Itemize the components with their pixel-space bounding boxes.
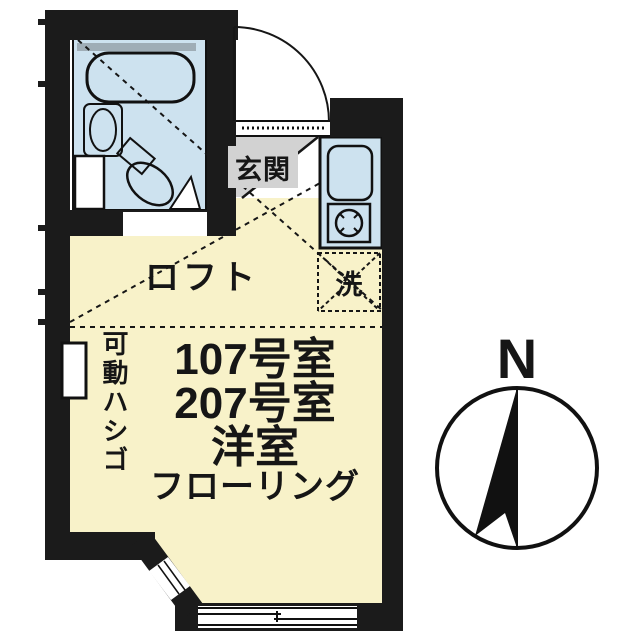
entrance-label: 玄関 [228,146,298,188]
ladder-symbol [62,343,86,398]
room-title-block: 107号室 207号室 洋室 フローリング [120,338,390,504]
door-swing-arc [234,27,329,122]
flooring-label: フローリング [120,470,390,504]
floorplan-drawing [0,0,640,640]
room-number-107: 107号室 [120,338,390,382]
wall-tick [38,319,46,325]
loft-label: ロフト [140,250,264,299]
washstand-box [75,156,104,209]
bathtub-deck [77,43,196,51]
room-type-label: 洋室 [120,426,390,470]
wall-tick [38,81,46,87]
floorplan-canvas: 玄関 洗 ロフト 可動ハシゴ 107号室 207号室 洋室 フローリング N [0,0,640,640]
bottom-window [198,606,357,628]
wall-tick [38,19,46,25]
wall-tick [38,225,46,231]
entrance-door [234,27,329,122]
compass [437,388,597,548]
wall-tick [38,289,46,295]
north-arrow [475,388,517,548]
bathroom-door-opening [123,212,207,236]
kitchen-unit [320,137,382,248]
compass-north-label: N [489,326,545,391]
entrance-threshold [236,120,330,137]
washer-label: 洗 [318,253,380,311]
room-number-207: 207号室 [120,382,390,426]
